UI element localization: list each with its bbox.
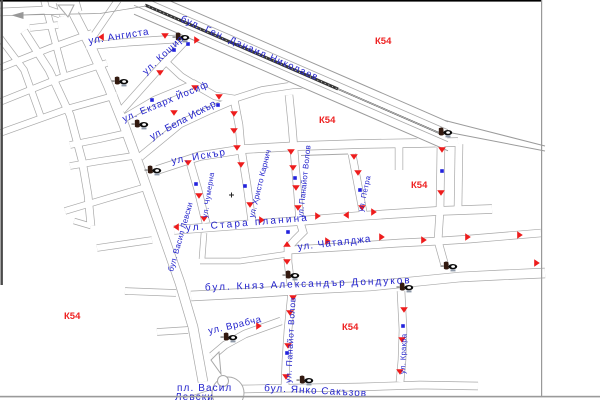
- svg-text:К54: К54: [342, 322, 359, 333]
- svg-text:К54: К54: [64, 311, 81, 322]
- svg-text:К54: К54: [319, 115, 336, 126]
- svg-text:ул. Кракра: ул. Кракра: [398, 333, 408, 374]
- svg-text:К54: К54: [375, 36, 392, 47]
- svg-text:К54: К54: [411, 180, 428, 191]
